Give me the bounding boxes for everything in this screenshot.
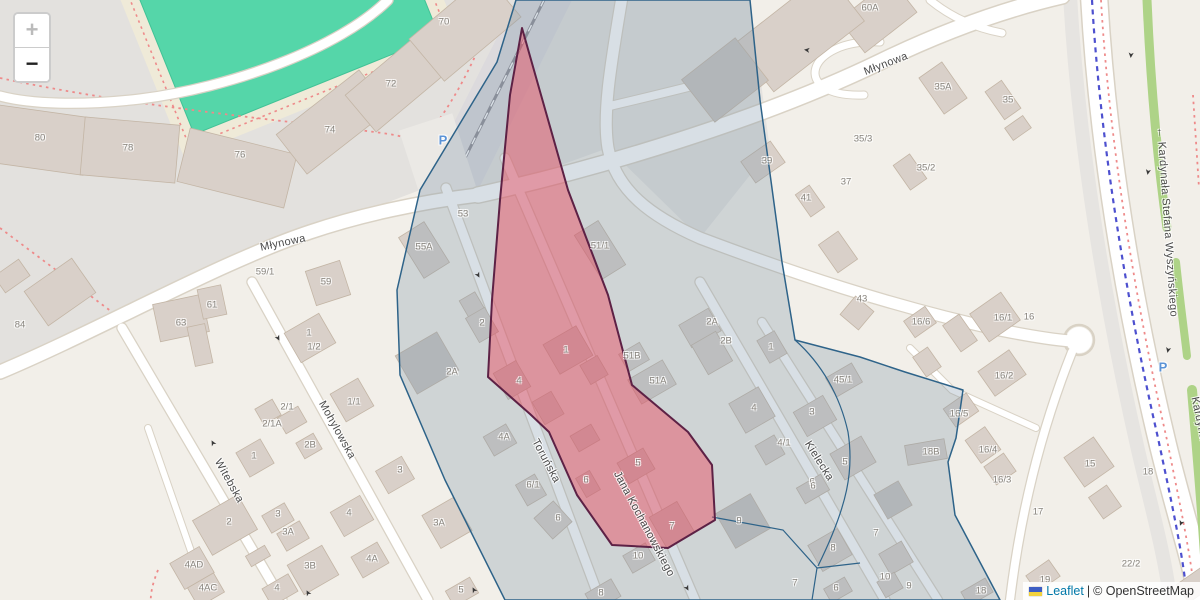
house-number-label: 16 [1024,312,1035,323]
house-number-label: 51A [650,376,667,387]
house-number-label: 76 [235,150,246,161]
parking-icon: P [439,133,448,148]
house-number-label: 80 [35,133,46,144]
house-number-label: 3A [282,527,294,538]
house-number-label: 4AD [185,560,203,571]
house-number-label: 35A [935,82,952,93]
house-number-label: 35 [1003,95,1014,106]
oneway-arrow-icon: ➤ [1163,346,1173,355]
street-name-label: Młynowa [862,50,909,78]
house-number-label: 78 [123,143,134,154]
house-number-label: 72 [386,79,397,90]
house-number-label: 3B [304,561,316,572]
house-number-label: 3 [809,407,814,418]
house-number-label: 2B [304,440,316,451]
house-number-label: 8 [830,543,835,554]
house-number-label: 4/1 [777,438,790,449]
oneway-arrow-icon: ➤ [468,585,479,595]
street-name-label: Kielecka [802,439,836,483]
oneway-arrow-icon: ➤ [1126,51,1136,58]
house-number-label: 2A [706,317,718,328]
house-number-label: 18 [1143,467,1154,478]
house-number-label: 1/1 [347,397,360,408]
house-number-label: 4AC [199,583,217,594]
house-number-label: 2A [446,367,458,378]
house-number-label: 39 [762,156,773,167]
house-number-label: 63 [176,318,187,329]
house-number-label: 9 [906,581,911,592]
house-number-label: 1 [251,451,256,462]
house-number-label: 43 [857,294,868,305]
house-number-label: 3 [397,465,402,476]
house-number-label: 10 [633,551,644,562]
house-number-label: 2 [479,318,484,329]
oneway-arrow-icon: ➤ [1176,518,1187,528]
street-name-label: Jana Kochanowskiego [611,469,677,579]
house-number-label: 2 [226,517,231,528]
house-number-label: 37 [841,177,852,188]
house-number-label: 1 [563,345,568,356]
house-number-label: 59/1 [256,267,275,278]
house-number-label: 7 [792,578,797,589]
house-number-label: 35/3 [854,134,873,145]
oneway-arrow-icon: ➤ [272,333,283,343]
street-name-label: Kardynała [1189,396,1200,450]
house-number-label: 59 [321,277,332,288]
house-number-label: 4 [274,583,279,594]
house-number-label: 3 [275,509,280,520]
house-number-label: 1 [306,328,311,339]
house-number-label: 6 [809,477,814,488]
oneway-arrow-icon: ➤ [1143,168,1153,176]
house-number-label: 1 [768,342,773,353]
house-number-label: 55A [416,242,433,253]
house-number-label: 51/1 [591,241,610,252]
house-number-label: 6 [833,583,838,594]
oneway-arrow-icon: ➤ [207,438,218,448]
street-name-label: Toruńska [529,437,562,485]
house-number-label: 41 [801,193,812,204]
street-name-label: ← Kardynała Stefana Wyszyńskiego [1154,127,1179,318]
oneway-arrow-icon: ➤ [803,45,811,55]
house-number-label: 7 [873,528,878,539]
house-number-label: 6/1 [526,480,539,491]
house-number-label: 16/6 [912,317,931,328]
house-number-label: 4 [516,376,521,387]
house-number-label: 4A [366,554,378,565]
map[interactable]: 70727476788084636159/1595355A51/122A1451… [0,0,1200,600]
house-number-label: 4 [751,403,756,414]
house-number-label: 7 [669,521,674,532]
house-number-label: 1/2 [307,342,320,353]
house-number-label: 2/1A [262,419,282,430]
house-number-label: 35/2 [917,163,936,174]
ukraine-flag-icon [1029,587,1042,596]
attribution-bar: Leaflet|© OpenStreetMap [1023,582,1200,600]
house-number-label: 16/5 [950,409,969,420]
house-number-label: 9 [736,516,741,527]
house-number-label: 22/2 [1122,559,1141,570]
map-labels: 70727476788084636159/1595355A51/122A1451… [0,0,1200,600]
openstreetmap-link[interactable]: © OpenStreetMap [1093,584,1194,598]
street-name-label: Mohylowska [316,399,358,461]
house-number-label: 51B [624,351,641,362]
zoom-control: + − [13,12,51,83]
house-number-label: 16/4 [979,445,998,456]
house-number-label: 16/2 [995,371,1014,382]
house-number-label: 74 [325,125,336,136]
house-number-label: 4A [498,432,510,443]
zoom-in-button[interactable]: + [15,14,49,48]
house-number-label: 17 [1033,507,1044,518]
oneway-arrow-icon: ➤ [302,588,313,598]
house-number-label: 2B [720,336,732,347]
house-number-label: 18B [923,447,940,458]
house-number-label: 16/1 [994,313,1013,324]
house-number-label: 60A [862,3,879,14]
house-number-label: 61 [207,300,218,311]
house-number-label: 5 [635,458,640,469]
house-number-label: 4 [346,508,351,519]
house-number-label: 5 [842,457,847,468]
oneway-arrow-icon: ➤ [472,270,483,280]
house-number-label: 16/3 [993,475,1012,486]
house-number-label: 15 [1085,459,1096,470]
house-number-label: 2/1 [280,402,293,413]
house-number-label: 3A [433,518,445,529]
street-name-label: Witebska [212,457,246,505]
house-number-label: 70 [439,17,450,28]
house-number-label: 6 [555,513,560,524]
leaflet-link[interactable]: Leaflet [1046,584,1084,598]
house-number-label: 18 [976,586,987,597]
house-number-label: 6 [583,475,588,486]
house-number-label: 8 [598,588,603,599]
house-number-label: 6 [810,481,815,492]
house-number-label: 10 [880,572,891,583]
house-number-label: 5 [458,585,463,596]
parking-icon: P [1159,360,1168,375]
house-number-label: 53 [458,209,469,220]
attribution-separator: | [1087,584,1090,598]
zoom-out-button[interactable]: − [15,48,49,81]
oneway-arrow-icon: ➤ [681,583,692,593]
house-number-label: 45/1 [834,375,853,386]
house-number-label: 84 [15,320,26,331]
street-name-label: Młynowa [259,232,307,253]
